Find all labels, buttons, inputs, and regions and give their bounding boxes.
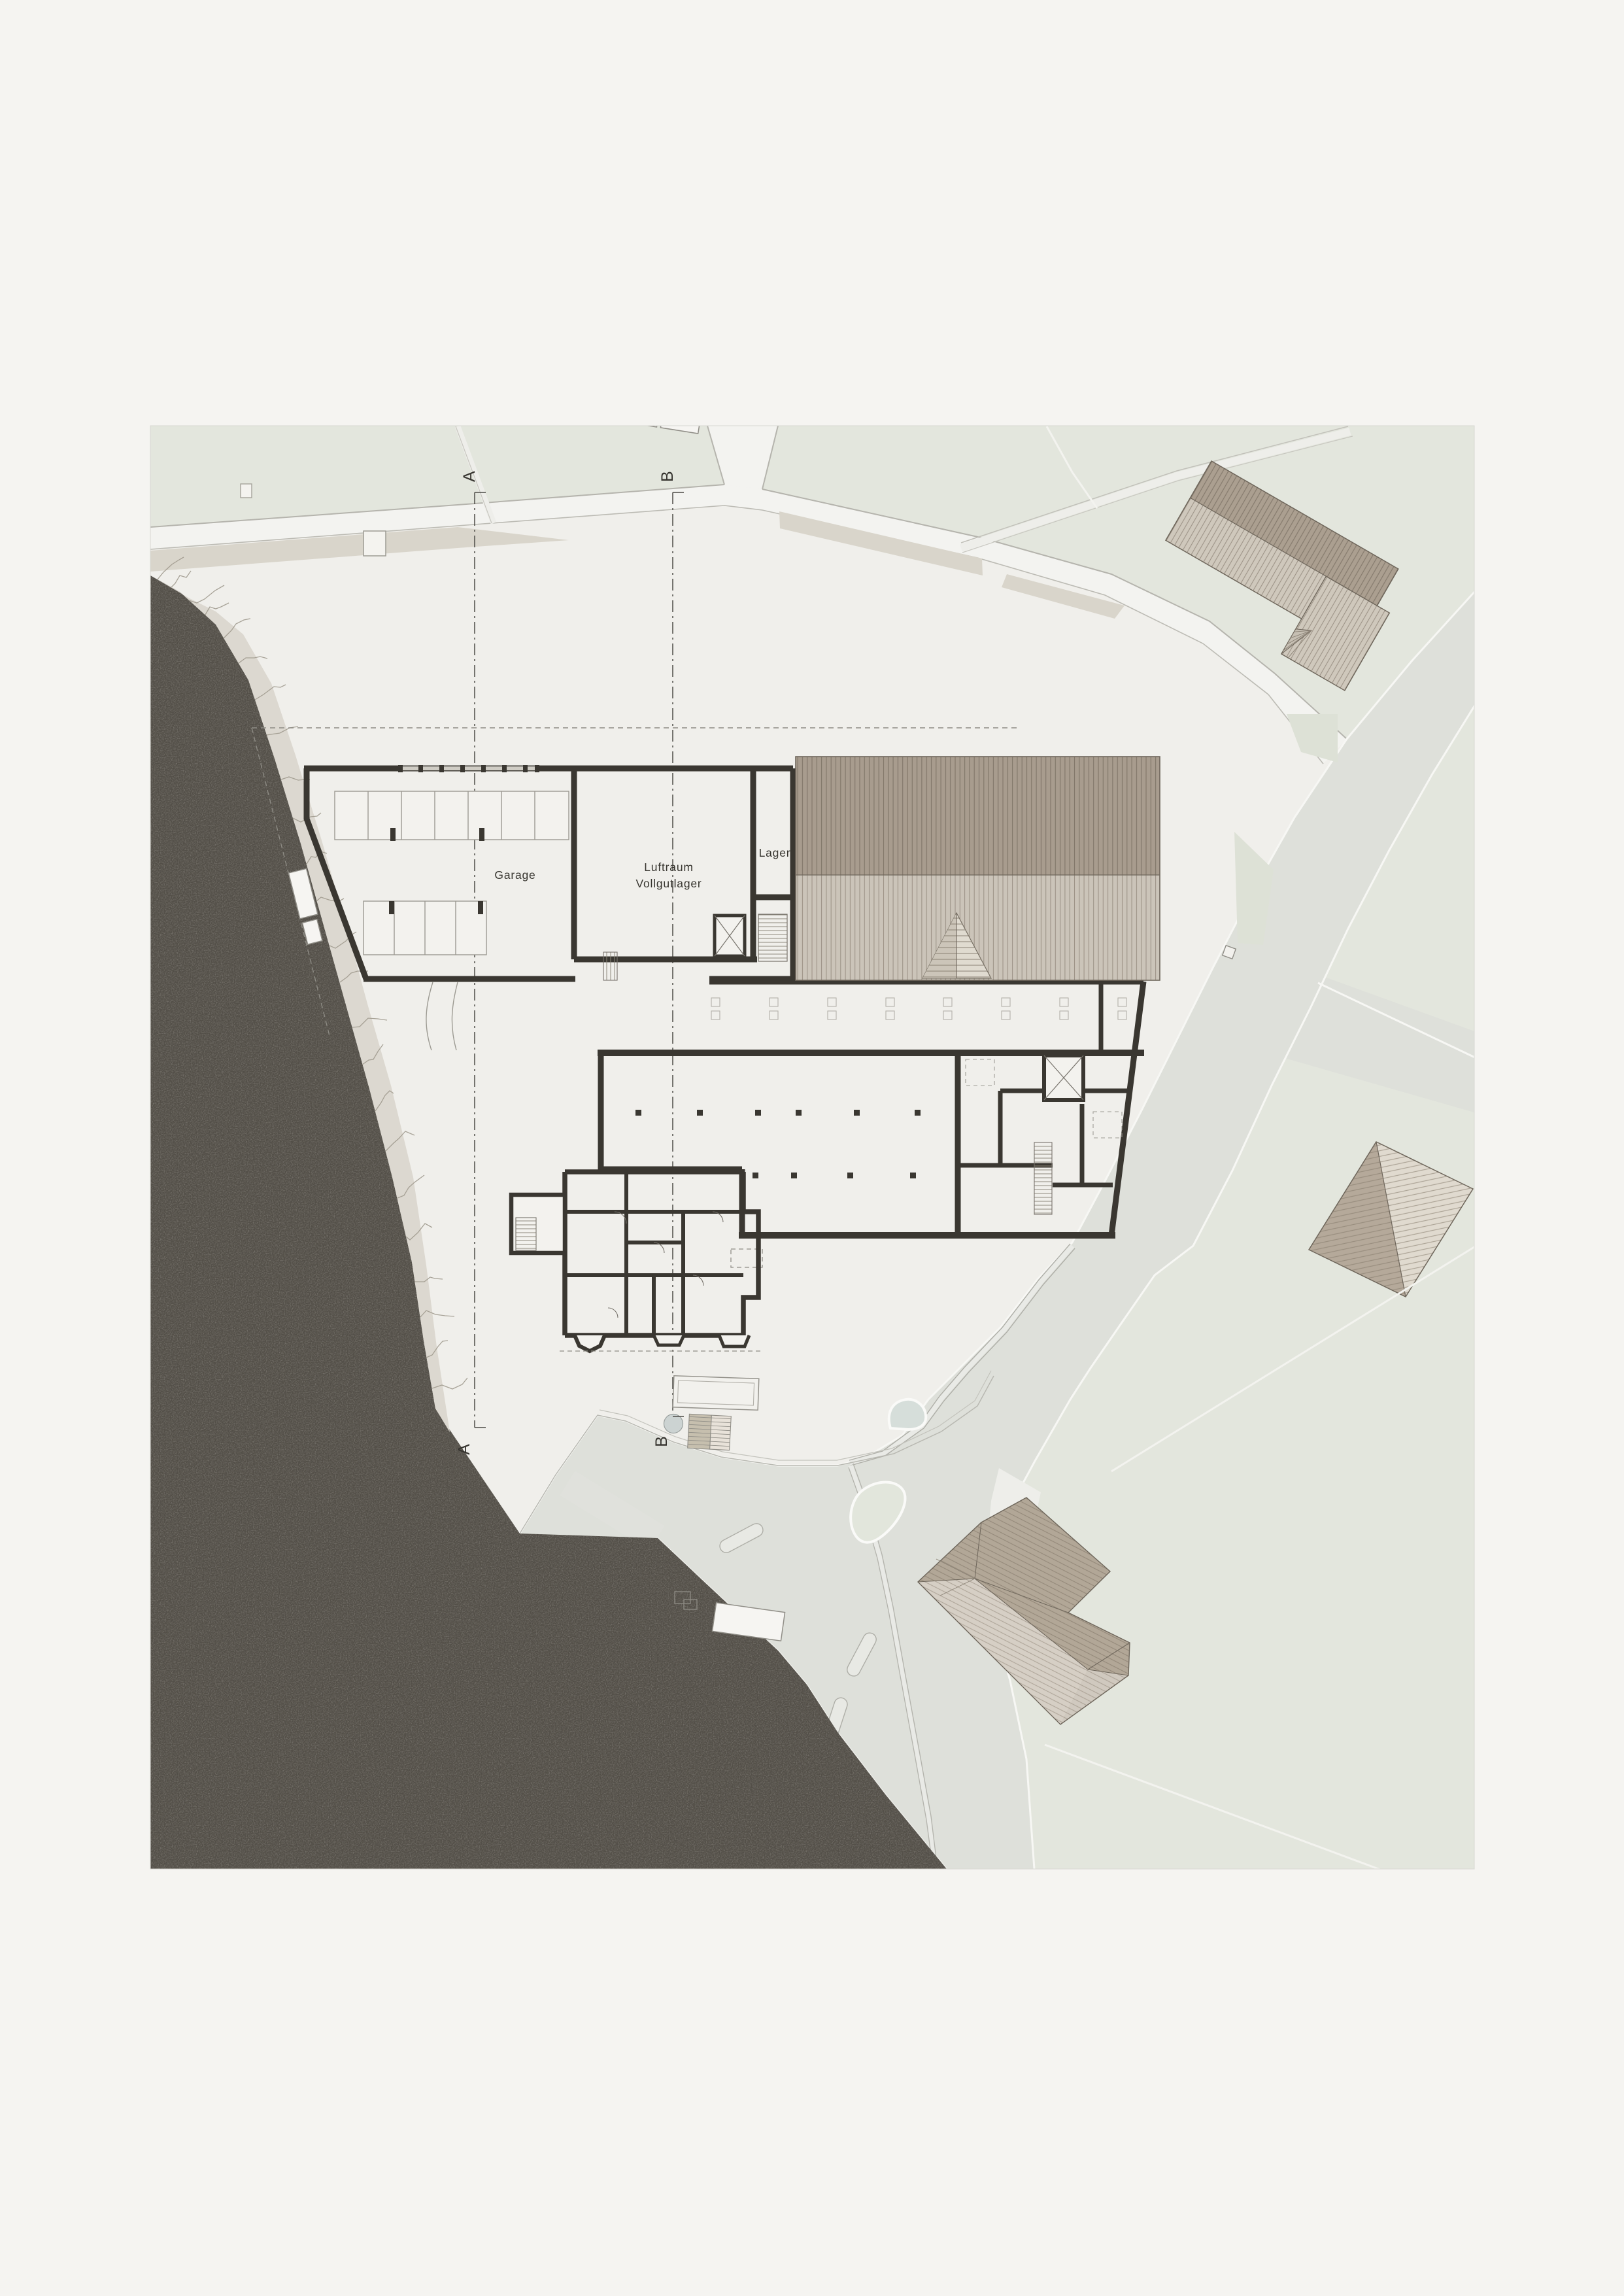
svg-text:B: B — [652, 1436, 671, 1447]
svg-text:Lager: Lager — [759, 846, 791, 859]
svg-text:Vollgutlager: Vollgutlager — [635, 877, 702, 890]
svg-text:B: B — [658, 471, 677, 482]
svg-text:Garage: Garage — [494, 868, 535, 882]
svg-text:A: A — [455, 1444, 473, 1455]
svg-text:Luftraum: Luftraum — [644, 861, 693, 874]
svg-text:A: A — [460, 471, 479, 482]
